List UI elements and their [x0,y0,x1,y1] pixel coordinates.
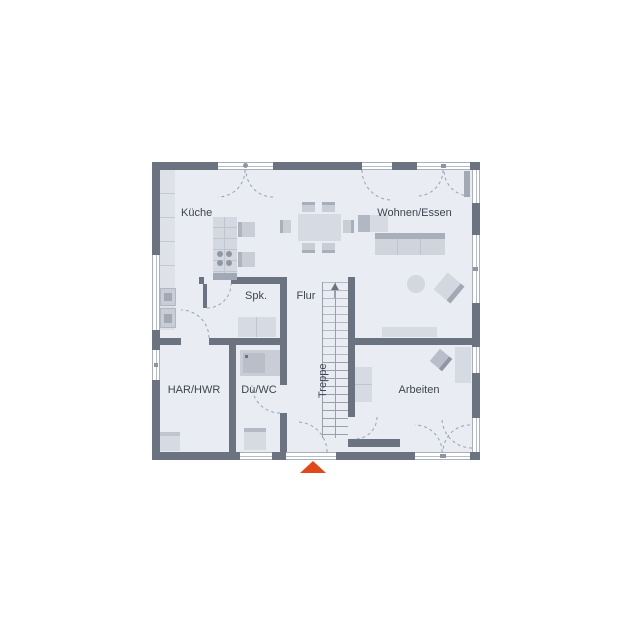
door-arc-kueche-right [246,170,273,197]
cooktop-burner [217,251,223,257]
floor-plan-canvas: Küche Wohnen/Essen Spk. Flur Treppe HAR/… [0,0,636,636]
window-kueche-left [152,255,160,330]
door-arc-spk [207,284,231,308]
wall-entry-arbeiten [348,439,400,447]
utility-appliance [160,432,180,451]
wall-harhwr-kueche-b [209,338,287,345]
door-handle-icon [441,164,446,168]
wall-kueche-spk-b [231,277,287,284]
dining-chair [280,220,291,233]
room-label-har-hwr: HAR/HWR [154,384,234,396]
door-arc-wohnen-left [417,170,443,196]
room-label-du-wc: Du/WC [236,384,282,396]
door-arc-arbeiten-entry [355,417,377,439]
outer-wall-right [472,162,480,460]
door-arc-wohnen-single [362,170,392,200]
entrance-marker [300,461,326,473]
window-arbeiten-right-2 [472,418,480,452]
door-arc-arbeiten-french-right [443,425,470,452]
kitchen-appliance-dishwasher [160,308,176,328]
window-handle-icon [473,267,478,271]
cooktop-burner [217,260,223,266]
room-label-treppe: Treppe [317,332,329,398]
window-wohnen-door [362,162,392,170]
pantry-shelf [238,317,276,337]
room-label-arbeiten: Arbeiten [379,384,459,396]
door-handle-icon [243,163,248,168]
washbasin [244,428,266,450]
stair-arrow-stem [334,290,335,298]
wall-stair-arbeiten [348,277,355,417]
window-arbeiten-right-1 [472,347,480,373]
shower-drain-icon [245,355,248,358]
kitchen-appliance-oven [160,288,176,306]
cooktop-burner [226,260,232,266]
dining-chair [322,243,335,253]
kitchen-island-edge [213,273,237,280]
dining-chair [302,202,315,212]
sofa [375,233,445,255]
door-leaf-wohnen [464,171,470,197]
window-duwc-bottom [240,452,272,460]
entry-door-threshold [286,452,336,460]
door-arc-kueche-left [218,170,245,197]
bar-stool [238,252,255,267]
desk-chair [430,349,453,372]
room-label-flur: Flur [284,290,328,302]
study-couch [355,367,372,402]
sideboard [382,327,437,337]
wall-kueche-spk-a [199,277,204,284]
spk-door-leaf [203,284,207,308]
coffee-table [407,275,425,293]
wall-harhwr-kueche-a [152,338,181,345]
stair-center-line [335,282,336,438]
shower [240,350,280,376]
door-handle-icon [440,454,446,458]
room-label-spk: Spk. [232,290,280,302]
wall-flur-duwc-b [280,413,287,452]
dining-chair [322,202,335,212]
bar-stool [238,222,255,237]
cooktop-burner [226,251,232,257]
kitchen-counter [160,170,175,330]
window-wohnen-right-1 [472,170,480,203]
door-arc-arbeiten-french-left [415,425,442,452]
appliance-detail [164,293,172,301]
armchair [434,273,465,304]
door-arc-arbeiten-side [442,418,472,448]
floor-plan: Küche Wohnen/Essen Spk. Flur Treppe HAR/… [152,162,480,460]
dining-chair [343,220,354,233]
room-label-kueche: Küche [181,207,212,219]
wall-harhwr-duwc [229,345,236,452]
window-handle-icon [154,363,158,367]
room-label-wohnen-essen: Wohnen/Essen [357,207,472,219]
stair-direction-arrow-icon [331,283,339,290]
appliance-detail [164,314,172,323]
desk [455,347,471,383]
dining-chair [302,243,315,253]
dining-table [298,214,341,241]
kitchen-island [213,217,237,280]
wall-wohnen-arbeiten [355,338,472,345]
door-arc-harhwr [181,310,209,338]
